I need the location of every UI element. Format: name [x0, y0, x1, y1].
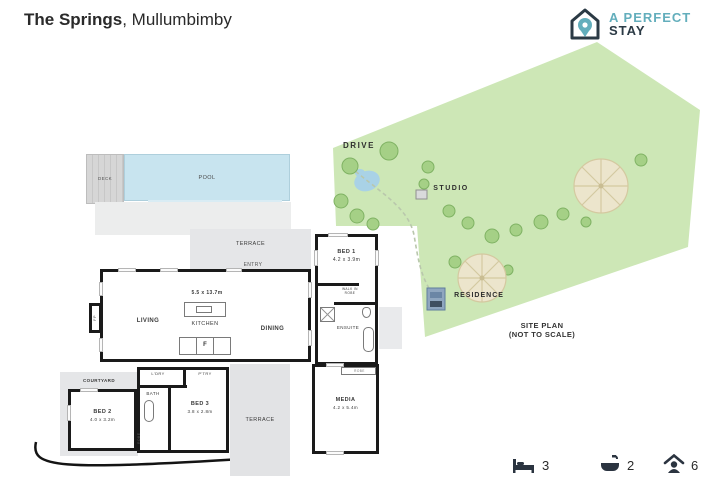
guests-house-icon [663, 454, 685, 474]
living-label: LIVING [118, 318, 178, 326]
bath-label: BATH [137, 391, 169, 397]
inner-wall-h1 [139, 385, 187, 388]
residence-building [427, 288, 445, 310]
deck-label: DECK [86, 176, 124, 182]
bed2-dim-label: 4.0 x 3.2m [68, 417, 137, 423]
logo-line2: STAY [609, 24, 691, 37]
fireplace-label: FP [92, 311, 100, 325]
annex-area [379, 307, 402, 349]
terrace-bottom-label: TERRACE [230, 417, 290, 424]
media-label: MEDIA [312, 397, 379, 404]
kitchen-counter: F [179, 337, 231, 355]
fridge-label: F [197, 338, 214, 354]
living-dim-label: 5.5 x 13.7m [172, 290, 242, 296]
terrace-top-label: TERRACE [190, 241, 311, 248]
bed-icon [512, 458, 536, 474]
media-dim-label: 4.2 x 5.4m [312, 405, 379, 411]
media-robe: ROBE [341, 367, 376, 375]
bedrooms-count: 3 [542, 458, 549, 474]
bed2-label: BED 2 [68, 409, 137, 416]
laundry-label: L'DRY [141, 371, 175, 376]
bath-icon [599, 454, 621, 474]
bed1-dim-label: 4.2 x 3.9m [315, 257, 378, 263]
land-parcel [333, 42, 700, 337]
logo-line1: A PERFECT [609, 11, 691, 24]
bathrooms-count: 2 [627, 458, 634, 474]
residence-label: RESIDENCE [446, 292, 512, 301]
media-robe-label: ROBE [342, 369, 377, 373]
toilet [362, 307, 371, 318]
pantry-label: P'TRY [188, 371, 222, 376]
page-title: The Springs, Mullumbimby [24, 10, 232, 30]
stat-bathrooms: 2 [599, 454, 634, 474]
site-plan-caption: SITE PLAN (NOT TO SCALE) [487, 321, 597, 340]
bath-tub [144, 400, 154, 422]
dining-label: DINING [245, 326, 300, 334]
stat-guests: 6 [663, 454, 698, 474]
stat-bedrooms: 3 [512, 458, 549, 474]
guests-count: 6 [691, 458, 698, 474]
bed1-label: BED 1 [315, 249, 378, 256]
pool-label: POOL [124, 175, 290, 182]
bed1-wall [317, 283, 359, 286]
drive-label: DRIVE [336, 141, 382, 151]
shower [320, 307, 335, 322]
house-pin-icon [567, 6, 603, 42]
ensuite-bath [363, 327, 374, 352]
property-name: The Springs [24, 10, 122, 29]
brand-logo: A PERFECT STAY [567, 6, 691, 42]
floorplan-page: DRIVE STUDIO RESIDENCE SITE PLAN (NOT TO… [0, 0, 720, 480]
property-location: , Mullumbimby [122, 10, 232, 29]
site-plan-caption-line2: (NOT TO SCALE) [487, 330, 597, 339]
inner-wall-v1 [183, 369, 186, 385]
site-plan-caption-line1: SITE PLAN [487, 321, 597, 330]
wir-wall [334, 302, 376, 305]
ensuite-label: ENSUITE [328, 325, 368, 331]
courtyard-label: COURTYARD [60, 378, 138, 384]
bed3-label: BED 3 [171, 401, 229, 408]
kitchen-sink [196, 306, 212, 313]
robe-label: ROBE [137, 428, 144, 448]
walk-in-robe-label: WALK IN ROBE [338, 288, 362, 296]
studio-label: STUDIO [426, 185, 476, 194]
bed3-dim-label: 3.8 x 2.8m [171, 409, 229, 415]
kitchen-label: KITCHEN [178, 321, 232, 328]
